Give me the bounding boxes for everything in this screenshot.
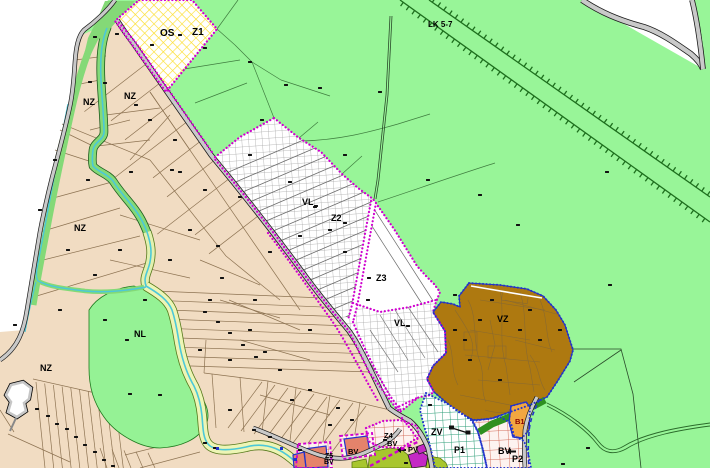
svg-text:PV: PV [408,445,418,454]
svg-text:P1: P1 [454,445,465,455]
svg-text:Z3: Z3 [376,273,387,283]
svg-text:ZV: ZV [431,427,443,437]
svg-text:B1: B1 [515,417,525,426]
svg-text:OS: OS [160,28,175,39]
svg-text:NZ: NZ [40,363,52,373]
svg-text:Z1: Z1 [192,27,204,38]
svg-text:P2: P2 [512,454,523,464]
svg-text:BV: BV [348,447,358,456]
svg-text:BV: BV [387,439,397,448]
svg-text:LK 5-7: LK 5-7 [428,20,453,29]
svg-text:NL: NL [134,329,146,339]
svg-text:NZ: NZ [74,223,86,233]
svg-text:VL: VL [394,318,406,328]
svg-text:Z2: Z2 [331,213,342,223]
svg-text:NZ: NZ [83,97,95,107]
svg-text:VL: VL [302,197,314,207]
svg-text:BV: BV [498,446,511,456]
svg-text:VZ: VZ [497,314,509,324]
svg-text:BV: BV [324,459,334,466]
svg-text:NZ: NZ [124,91,136,101]
